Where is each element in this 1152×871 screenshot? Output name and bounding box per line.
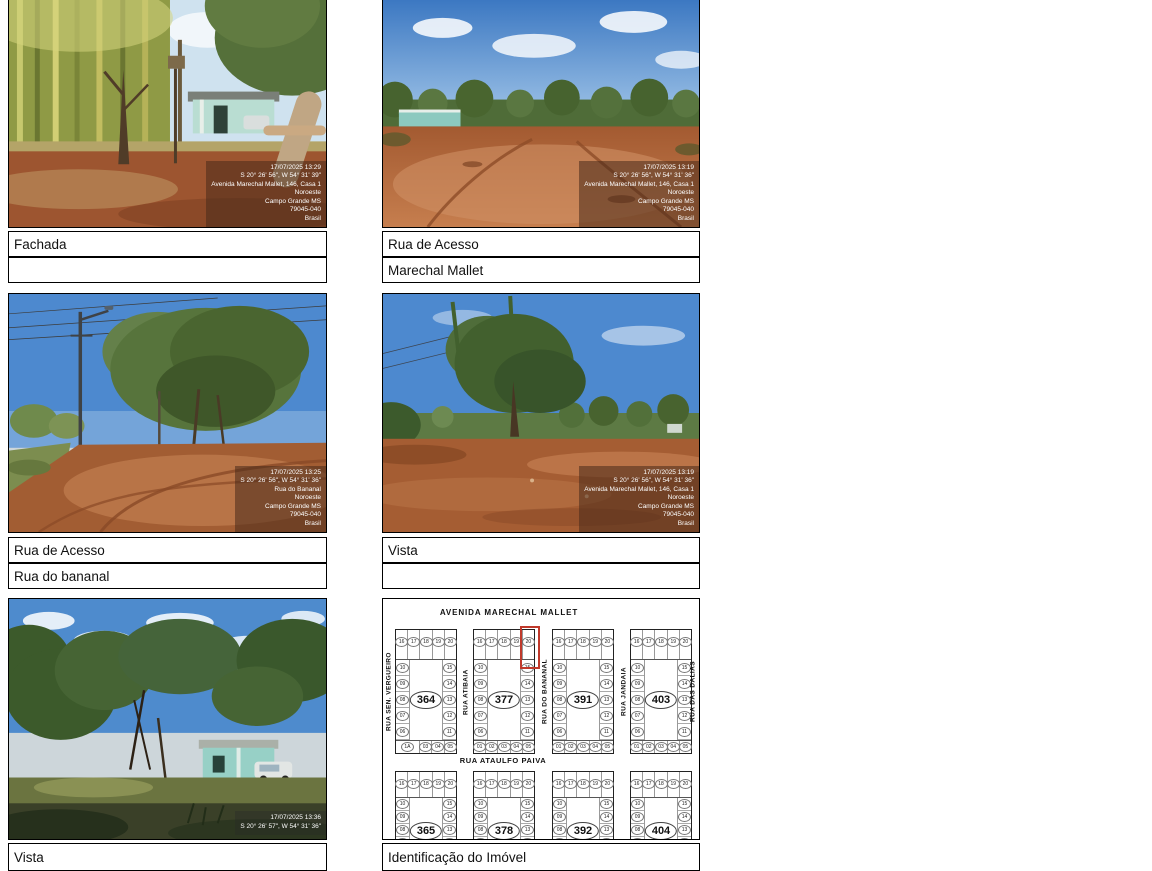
map-lot-number: 18 (498, 779, 511, 789)
map-lot-number: 14 (443, 679, 456, 689)
map-lot-number: 19 (510, 779, 523, 789)
map-lot-number: 18 (655, 779, 668, 789)
report-page: { "figures": [ { "id": "fachada", "capti… (0, 0, 1152, 863)
map-lot-number: 17 (564, 779, 577, 789)
map-highlight-lot (520, 626, 540, 669)
cadastral-map: AVENIDA MARECHAL MALLET RUA ATAULFO PAIV… (382, 598, 700, 840)
map-lot-number: 04 (510, 742, 523, 752)
photo-watermark: 17/07/2025 13:29S 20° 26' 56", W 54° 31'… (206, 161, 326, 228)
map-lot-number: 18 (655, 637, 668, 647)
map-lot-row-top: 1617181920 (474, 772, 534, 798)
photo-watermark: 17/07/2025 13:19S 20° 26' 56", W 54° 31'… (579, 161, 699, 228)
map-lot-number: 01 (630, 742, 643, 752)
photo-watermark: 17/07/2025 13:25S 20° 26' 56", W 54° 31'… (235, 466, 326, 533)
caption-vista-2: Vista (8, 843, 327, 871)
map-lot-number: 17 (407, 779, 420, 789)
map-block-number: 365 (410, 822, 442, 840)
watermark-line: 17/07/2025 13:19 (584, 469, 694, 478)
map-lot-number: 07 (474, 711, 487, 721)
caption-marechal-mallet: Marechal Mallet (382, 257, 700, 283)
map-lot-number: 06 (474, 727, 487, 737)
caption-fachada: Fachada (8, 231, 327, 257)
map-lot-number: 10 (396, 799, 409, 809)
map-lot-number: 19 (667, 637, 680, 647)
map-lot-number: 13 (600, 825, 613, 835)
map-lot-number: 04 (667, 742, 680, 752)
map-lot-number: 09 (474, 812, 487, 822)
map-lot-number: 16 (473, 637, 486, 647)
watermark-line: 79045-040 (584, 511, 694, 520)
map-lot-number: 15 (678, 799, 691, 809)
map-lot-number: 05 (444, 742, 457, 752)
watermark-line: 17/07/2025 13:25 (240, 469, 321, 478)
map-block-391: 1617181920100908070615141312113910102030… (552, 629, 614, 754)
map-lot-number: 14 (678, 812, 691, 822)
map-lot-number: 13 (443, 825, 456, 835)
map-lot-number: 14 (521, 679, 534, 689)
map-lot-number: 16 (630, 637, 643, 647)
map-lot-number: 14 (443, 812, 456, 822)
map-lot-number: 19 (432, 637, 445, 647)
map-block-365: 161718192010090807061514131211365 (395, 771, 457, 840)
map-lot-number: 02 (564, 742, 577, 752)
map-lot-number: 09 (396, 679, 409, 689)
map-lot-number: 14 (521, 812, 534, 822)
map-lot-number: 08 (631, 825, 644, 835)
watermark-line: Noroeste (211, 189, 321, 198)
map-lot-number: 07 (553, 711, 566, 721)
watermark-line: 79045-040 (211, 206, 321, 215)
photo-vista-2: 17/07/2025 13:36S 20° 26' 57", W 54° 31'… (8, 598, 327, 840)
map-canvas: AVENIDA MARECHAL MALLET RUA ATAULFO PAIV… (383, 599, 698, 838)
map-lot-row-top: 1617181920 (553, 772, 613, 798)
map-lot-row-bottom: 0102030405 (474, 740, 534, 753)
map-lot-number: 07 (474, 838, 487, 840)
map-lot-number: 08 (474, 695, 487, 705)
map-lot-row-top: 1617181920 (631, 630, 691, 660)
map-lot-number: 13 (521, 695, 534, 705)
map-lot-number: 16 (473, 779, 486, 789)
map-lot-number: 19 (589, 779, 602, 789)
caption-fachada-2 (8, 257, 327, 283)
map-lot-number: 07 (553, 838, 566, 840)
map-lot-number: 03 (655, 742, 668, 752)
watermark-line: Noroeste (240, 494, 321, 503)
map-lot-number: 19 (667, 779, 680, 789)
map-block-number: 391 (567, 691, 599, 709)
map-lot-number: 12 (600, 838, 613, 840)
map-block-404: 161718192010090807061514131211404 (630, 771, 692, 840)
map-block-392: 161718192010090807061514131211392 (552, 771, 614, 840)
watermark-line: Brasil (240, 520, 321, 529)
map-lot-number: 10 (631, 663, 644, 673)
map-lot-number: 16 (395, 637, 408, 647)
photo-rua-do-bananal: 17/07/2025 13:25S 20° 26' 56", W 54° 31'… (8, 293, 327, 533)
caption-identificacao-do-imovel: Identificação do Imóvel (382, 843, 700, 871)
map-lot-number: 20 (444, 779, 457, 789)
map-lot-number: 08 (396, 825, 409, 835)
map-lot-number: 11 (521, 727, 534, 737)
map-block-number: 403 (645, 691, 677, 709)
map-lot-row-bottom: 1A030405 (396, 740, 456, 753)
map-lot-number: 16 (395, 779, 408, 789)
map-lot-number: 08 (553, 695, 566, 705)
map-lot-number: 20 (679, 779, 692, 789)
map-lot-number: 1A (401, 742, 414, 752)
map-lot-number: 04 (589, 742, 602, 752)
map-lot-number: 15 (521, 799, 534, 809)
watermark-line: Avenida Marechal Mallet, 146, Casa 1 (211, 181, 321, 190)
watermark-line: Campo Grande MS (584, 198, 694, 207)
watermark-line: 17/07/2025 13:36 (240, 814, 321, 823)
map-lot-number: 09 (553, 812, 566, 822)
map-lot-number: 06 (553, 727, 566, 737)
map-lot-number: 15 (443, 663, 456, 673)
map-lot-number: 09 (631, 679, 644, 689)
map-lot-row-top: 1617181920 (396, 630, 456, 660)
map-lot-number: 18 (498, 637, 511, 647)
map-lot-number: 06 (631, 727, 644, 737)
caption-text: Vista (14, 850, 44, 865)
caption-text: Vista (388, 543, 418, 558)
map-lot-number: 08 (474, 825, 487, 835)
map-lot-number: 04 (431, 742, 444, 752)
map-block-364: 1617181920100908070615141312113641A03040… (395, 629, 457, 754)
map-block-number: 404 (645, 822, 677, 840)
map-lot-number: 12 (600, 711, 613, 721)
map-street-label: RUA SEN. VERGUEIRO (383, 632, 395, 752)
map-lot-row-bottom: 0102030405 (631, 740, 691, 753)
watermark-line: Avenida Marechal Mallet, 146, Casa 1 (584, 181, 694, 190)
map-lot-number: 16 (630, 779, 643, 789)
map-lot-number: 09 (474, 679, 487, 689)
map-lot-number: 14 (600, 679, 613, 689)
map-lot-number: 05 (601, 742, 614, 752)
map-lot-number: 06 (396, 727, 409, 737)
watermark-line: S 20° 26' 56", W 54° 31' 36" (240, 477, 321, 486)
caption-text: Rua do bananal (14, 569, 109, 584)
map-lot-number: 03 (498, 742, 511, 752)
map-street-avenida-marechal-mallet: AVENIDA MARECHAL MALLET (383, 608, 635, 617)
map-lot-number: 08 (396, 695, 409, 705)
map-lot-number: 03 (577, 742, 590, 752)
map-lot-number: 18 (420, 779, 433, 789)
map-lot-number: 11 (600, 727, 613, 737)
watermark-line: 79045-040 (584, 206, 694, 215)
watermark-line: S 20° 26' 56", W 54° 31' 39" (211, 172, 321, 181)
map-block-378: 161718192010090807061514131211378 (473, 771, 535, 840)
map-block-number: 378 (488, 822, 520, 840)
watermark-line: Brasil (584, 215, 694, 224)
map-lot-number: 16 (552, 779, 565, 789)
map-lot-number: 12 (443, 711, 456, 721)
watermark-line: S 20° 26' 56", W 54° 31' 36" (584, 172, 694, 181)
caption-rua-do-bananal: Rua do bananal (8, 563, 327, 589)
watermark-line: Brasil (584, 520, 694, 529)
watermark-line: Campo Grande MS (584, 503, 694, 512)
map-lot-number: 13 (443, 695, 456, 705)
map-lot-number: 07 (396, 711, 409, 721)
watermark-line: Rua do Bananal (240, 486, 321, 495)
map-lot-number: 09 (396, 812, 409, 822)
map-lot-number: 03 (419, 742, 432, 752)
caption-text: Identificação do Imóvel (388, 850, 526, 865)
caption-text: Marechal Mallet (388, 263, 483, 278)
map-lot-number: 12 (678, 838, 691, 840)
map-lot-number: 12 (521, 838, 534, 840)
map-block-number: 377 (488, 691, 520, 709)
map-lot-row-top: 1617181920 (631, 772, 691, 798)
map-lot-number: 20 (601, 779, 614, 789)
map-block-number: 392 (567, 822, 599, 840)
watermark-line: Noroeste (584, 494, 694, 503)
map-lot-number: 01 (552, 742, 565, 752)
map-lot-number: 18 (577, 779, 590, 789)
map-lot-number: 18 (577, 637, 590, 647)
map-lot-number: 13 (600, 695, 613, 705)
map-lot-number: 10 (474, 799, 487, 809)
map-lot-number: 14 (600, 812, 613, 822)
caption-rua-de-acesso-2: Rua de Acesso (8, 537, 327, 563)
watermark-line: Avenida Marechal Mallet, 146, Casa 1 (584, 486, 694, 495)
map-lot-number: 09 (631, 812, 644, 822)
photo-watermark: 17/07/2025 13:36S 20° 26' 57", W 54° 31'… (235, 811, 326, 835)
map-lot-number: 10 (396, 663, 409, 673)
map-street-label: RUA ATIBAIA (460, 632, 472, 752)
map-lot-number: 05 (522, 742, 535, 752)
map-lot-number: 11 (443, 727, 456, 737)
map-lot-number: 01 (473, 742, 486, 752)
map-lot-number: 15 (600, 799, 613, 809)
map-lot-number: 09 (553, 679, 566, 689)
watermark-line: Noroeste (584, 189, 694, 198)
photo-vista2-scene (9, 599, 326, 839)
map-lot-number: 13 (521, 825, 534, 835)
map-street-label: RUA DAS DALIAS (687, 632, 699, 752)
map-lot-number: 17 (642, 637, 655, 647)
caption-vista-1: Vista (382, 537, 700, 563)
map-lot-number: 10 (553, 799, 566, 809)
watermark-line: 79045-040 (240, 511, 321, 520)
map-lot-number: 19 (432, 779, 445, 789)
map-lot-number: 17 (642, 779, 655, 789)
caption-text: Fachada (14, 237, 67, 252)
photo-watermark: 17/07/2025 13:19S 20° 26' 56", W 54° 31'… (579, 466, 699, 533)
map-lot-number: 17 (485, 779, 498, 789)
watermark-line: S 20° 26' 56", W 54° 31' 36" (584, 477, 694, 486)
map-lot-number: 08 (631, 695, 644, 705)
map-lot-number: 20 (522, 779, 535, 789)
map-lot-number: 10 (553, 663, 566, 673)
watermark-line: Brasil (211, 215, 321, 224)
map-block-403: 1617181920100908070615141312114030102030… (630, 629, 692, 754)
watermark-line: Campo Grande MS (211, 198, 321, 207)
map-lot-number: 13 (678, 825, 691, 835)
map-lot-number: 17 (564, 637, 577, 647)
map-lot-number: 16 (552, 637, 565, 647)
map-lot-number: 07 (631, 711, 644, 721)
map-street-label: RUA DO BANANAL (539, 632, 551, 752)
map-street-rua-ataulfo-paiva: RUA ATAULFO PAIVA (383, 756, 623, 765)
map-lot-number: 15 (600, 663, 613, 673)
photo-rua-de-acesso-marechal: 17/07/2025 13:19S 20° 26' 56", W 54° 31'… (382, 0, 700, 228)
map-lot-number: 12 (521, 711, 534, 721)
map-lot-number: 20 (444, 637, 457, 647)
watermark-line: Campo Grande MS (240, 503, 321, 512)
map-lot-number: 19 (589, 637, 602, 647)
map-lot-number: 15 (443, 799, 456, 809)
map-lot-number: 10 (474, 663, 487, 673)
map-street-label: RUA JANDAIA (618, 632, 630, 752)
map-lot-number: 02 (485, 742, 498, 752)
map-lot-number: 07 (631, 838, 644, 840)
map-lot-number: 08 (553, 825, 566, 835)
caption-text: Rua de Acesso (388, 237, 479, 252)
map-block-number: 364 (410, 691, 442, 709)
caption-vista-1-empty (382, 563, 700, 589)
map-lot-number: 18 (420, 637, 433, 647)
map-lot-number: 02 (642, 742, 655, 752)
watermark-line: 17/07/2025 13:29 (211, 164, 321, 173)
photo-vista-1: 17/07/2025 13:19S 20° 26' 56", W 54° 31'… (382, 293, 700, 533)
watermark-line: S 20° 26' 57", W 54° 31' 36" (240, 823, 321, 832)
map-lot-number: 12 (443, 838, 456, 840)
map-lot-number: 07 (396, 838, 409, 840)
photo-fachada: 17/07/2025 13:29S 20° 26' 56", W 54° 31'… (8, 0, 327, 228)
map-lot-number: 10 (631, 799, 644, 809)
map-lot-number: 20 (601, 637, 614, 647)
map-lot-row-top: 1617181920 (396, 772, 456, 798)
caption-rua-de-acesso: Rua de Acesso (382, 231, 700, 257)
map-lot-number: 17 (407, 637, 420, 647)
map-lot-row-bottom: 0102030405 (553, 740, 613, 753)
map-lot-row-top: 1617181920 (553, 630, 613, 660)
watermark-line: 17/07/2025 13:19 (584, 164, 694, 173)
caption-text: Rua de Acesso (14, 543, 105, 558)
map-lot-number: 17 (485, 637, 498, 647)
